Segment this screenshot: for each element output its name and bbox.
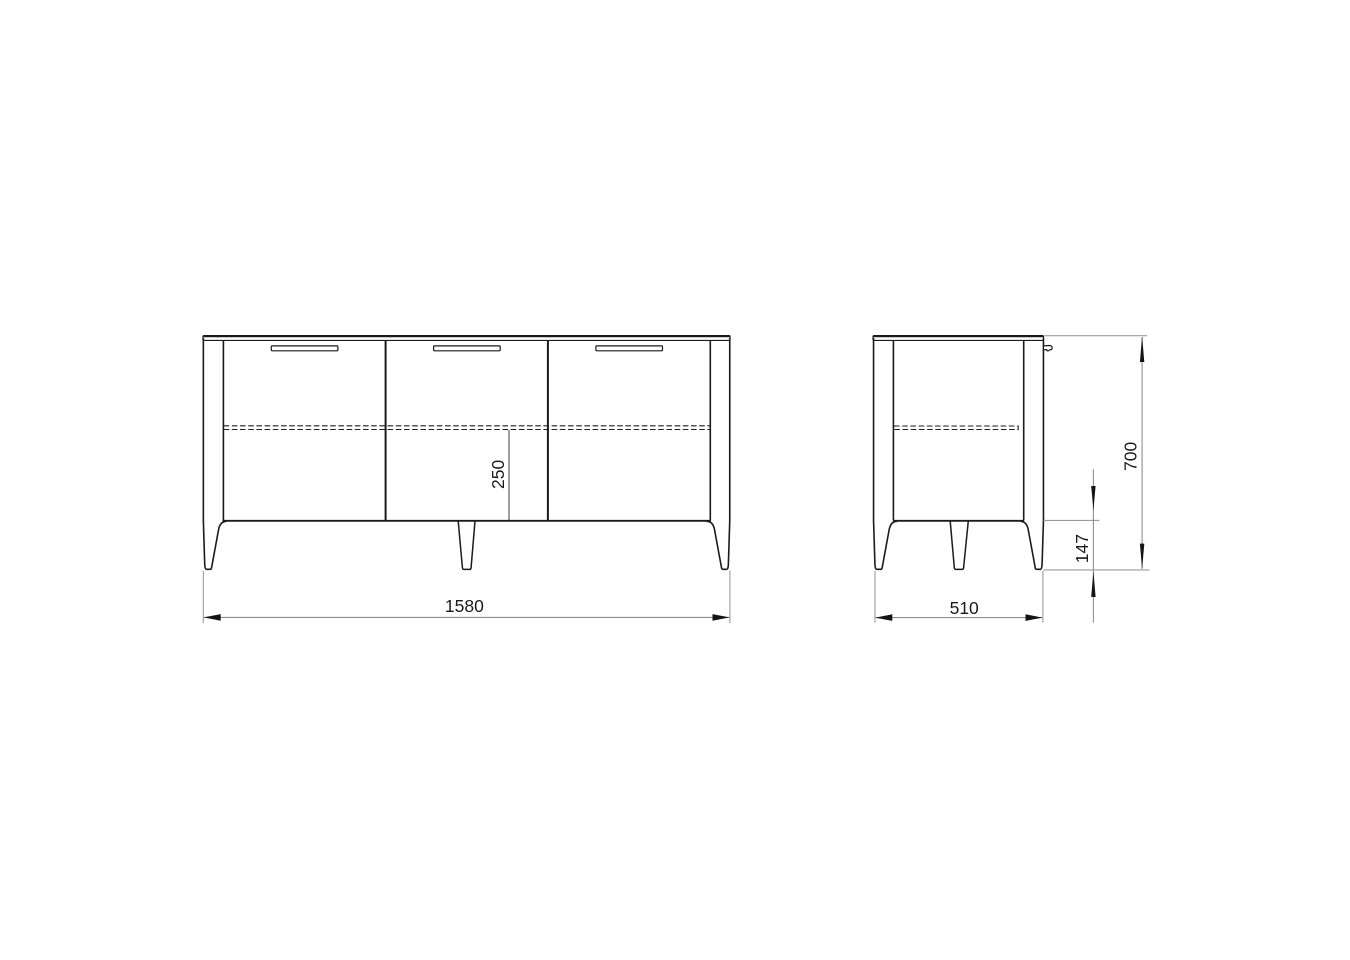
svg-text:1580: 1580	[445, 596, 484, 616]
svg-text:510: 510	[950, 598, 979, 618]
svg-text:147: 147	[1072, 534, 1092, 563]
svg-text:700: 700	[1120, 442, 1140, 471]
svg-text:250: 250	[488, 460, 508, 489]
